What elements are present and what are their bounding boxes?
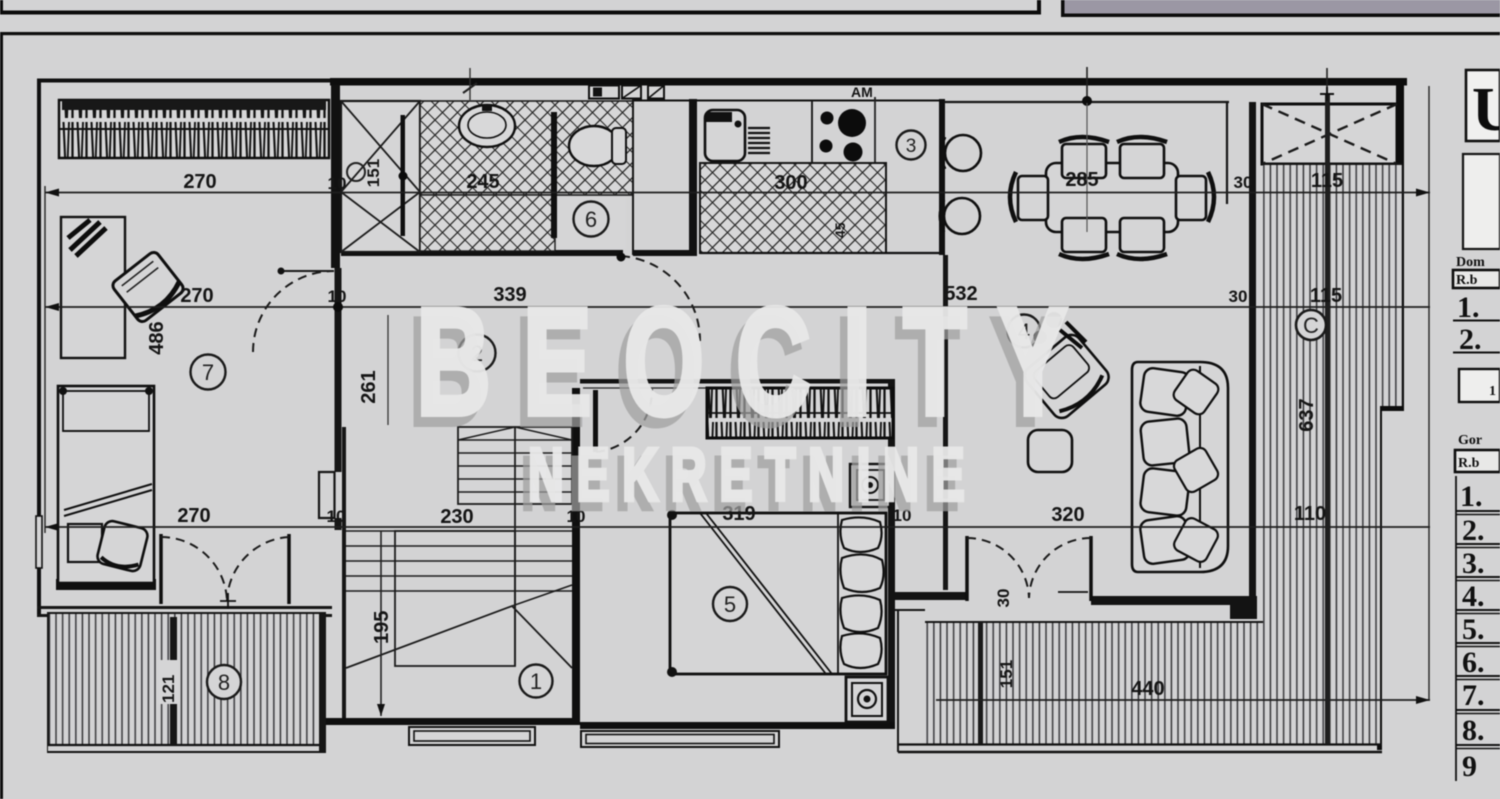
svg-text:110: 110: [1294, 503, 1326, 525]
svg-text:C: C: [1303, 313, 1319, 338]
svg-text:440: 440: [1131, 678, 1164, 700]
svg-text:115: 115: [1310, 285, 1342, 307]
svg-text:1.: 1.: [1460, 480, 1483, 513]
svg-text:3.: 3.: [1462, 547, 1485, 580]
svg-text:1: 1: [530, 669, 542, 694]
svg-text:R.b: R.b: [1458, 456, 1480, 471]
svg-text:5.: 5.: [1462, 613, 1485, 646]
svg-text:9: 9: [1462, 750, 1477, 783]
svg-text:115: 115: [1311, 170, 1343, 192]
svg-text:7: 7: [202, 360, 214, 385]
svg-text:10: 10: [328, 287, 347, 306]
svg-text:261: 261: [358, 370, 380, 403]
svg-text:1: 1: [1489, 384, 1496, 399]
svg-text:Gor: Gor: [1458, 433, 1482, 448]
svg-text:10: 10: [328, 174, 347, 193]
svg-text:486: 486: [146, 321, 168, 354]
svg-text:10: 10: [327, 507, 346, 526]
svg-text:285: 285: [1065, 169, 1098, 191]
svg-text:30: 30: [1229, 287, 1248, 306]
svg-text:AM: AM: [851, 84, 873, 100]
svg-text:300: 300: [774, 172, 807, 194]
svg-text:Dom: Dom: [1456, 255, 1485, 270]
svg-text:2.: 2.: [1459, 323, 1482, 356]
svg-text:30: 30: [1234, 173, 1253, 192]
svg-text:8: 8: [218, 670, 230, 695]
svg-text:7.: 7.: [1462, 679, 1485, 712]
svg-text:230: 230: [440, 506, 473, 528]
svg-text:121: 121: [159, 675, 178, 703]
svg-text:BEOCITY: BEOCITY: [416, 276, 1099, 447]
svg-text:NEKRETNINE: NEKRETNINE: [528, 434, 978, 516]
svg-text:270: 270: [183, 171, 216, 193]
svg-text:30: 30: [994, 589, 1013, 608]
svg-text:637: 637: [1296, 398, 1318, 431]
svg-text:U: U: [1472, 76, 1500, 144]
svg-text:8.: 8.: [1462, 714, 1485, 747]
svg-text:5: 5: [724, 592, 736, 617]
svg-text:6.: 6.: [1462, 646, 1485, 679]
svg-text:151: 151: [364, 159, 383, 187]
svg-text:195: 195: [371, 611, 393, 644]
svg-text:270: 270: [180, 285, 213, 307]
svg-text:6: 6: [585, 207, 597, 232]
svg-text:320: 320: [1051, 504, 1084, 526]
svg-text:3: 3: [906, 136, 917, 157]
svg-text:270: 270: [177, 505, 210, 527]
svg-text:151: 151: [997, 660, 1016, 688]
svg-text:1.: 1.: [1457, 291, 1480, 324]
svg-text:2.: 2.: [1462, 514, 1485, 547]
svg-text:R.b: R.b: [1456, 273, 1478, 288]
svg-text:4.: 4.: [1462, 580, 1485, 613]
svg-text:45: 45: [832, 222, 848, 238]
svg-text:245: 245: [466, 171, 499, 193]
